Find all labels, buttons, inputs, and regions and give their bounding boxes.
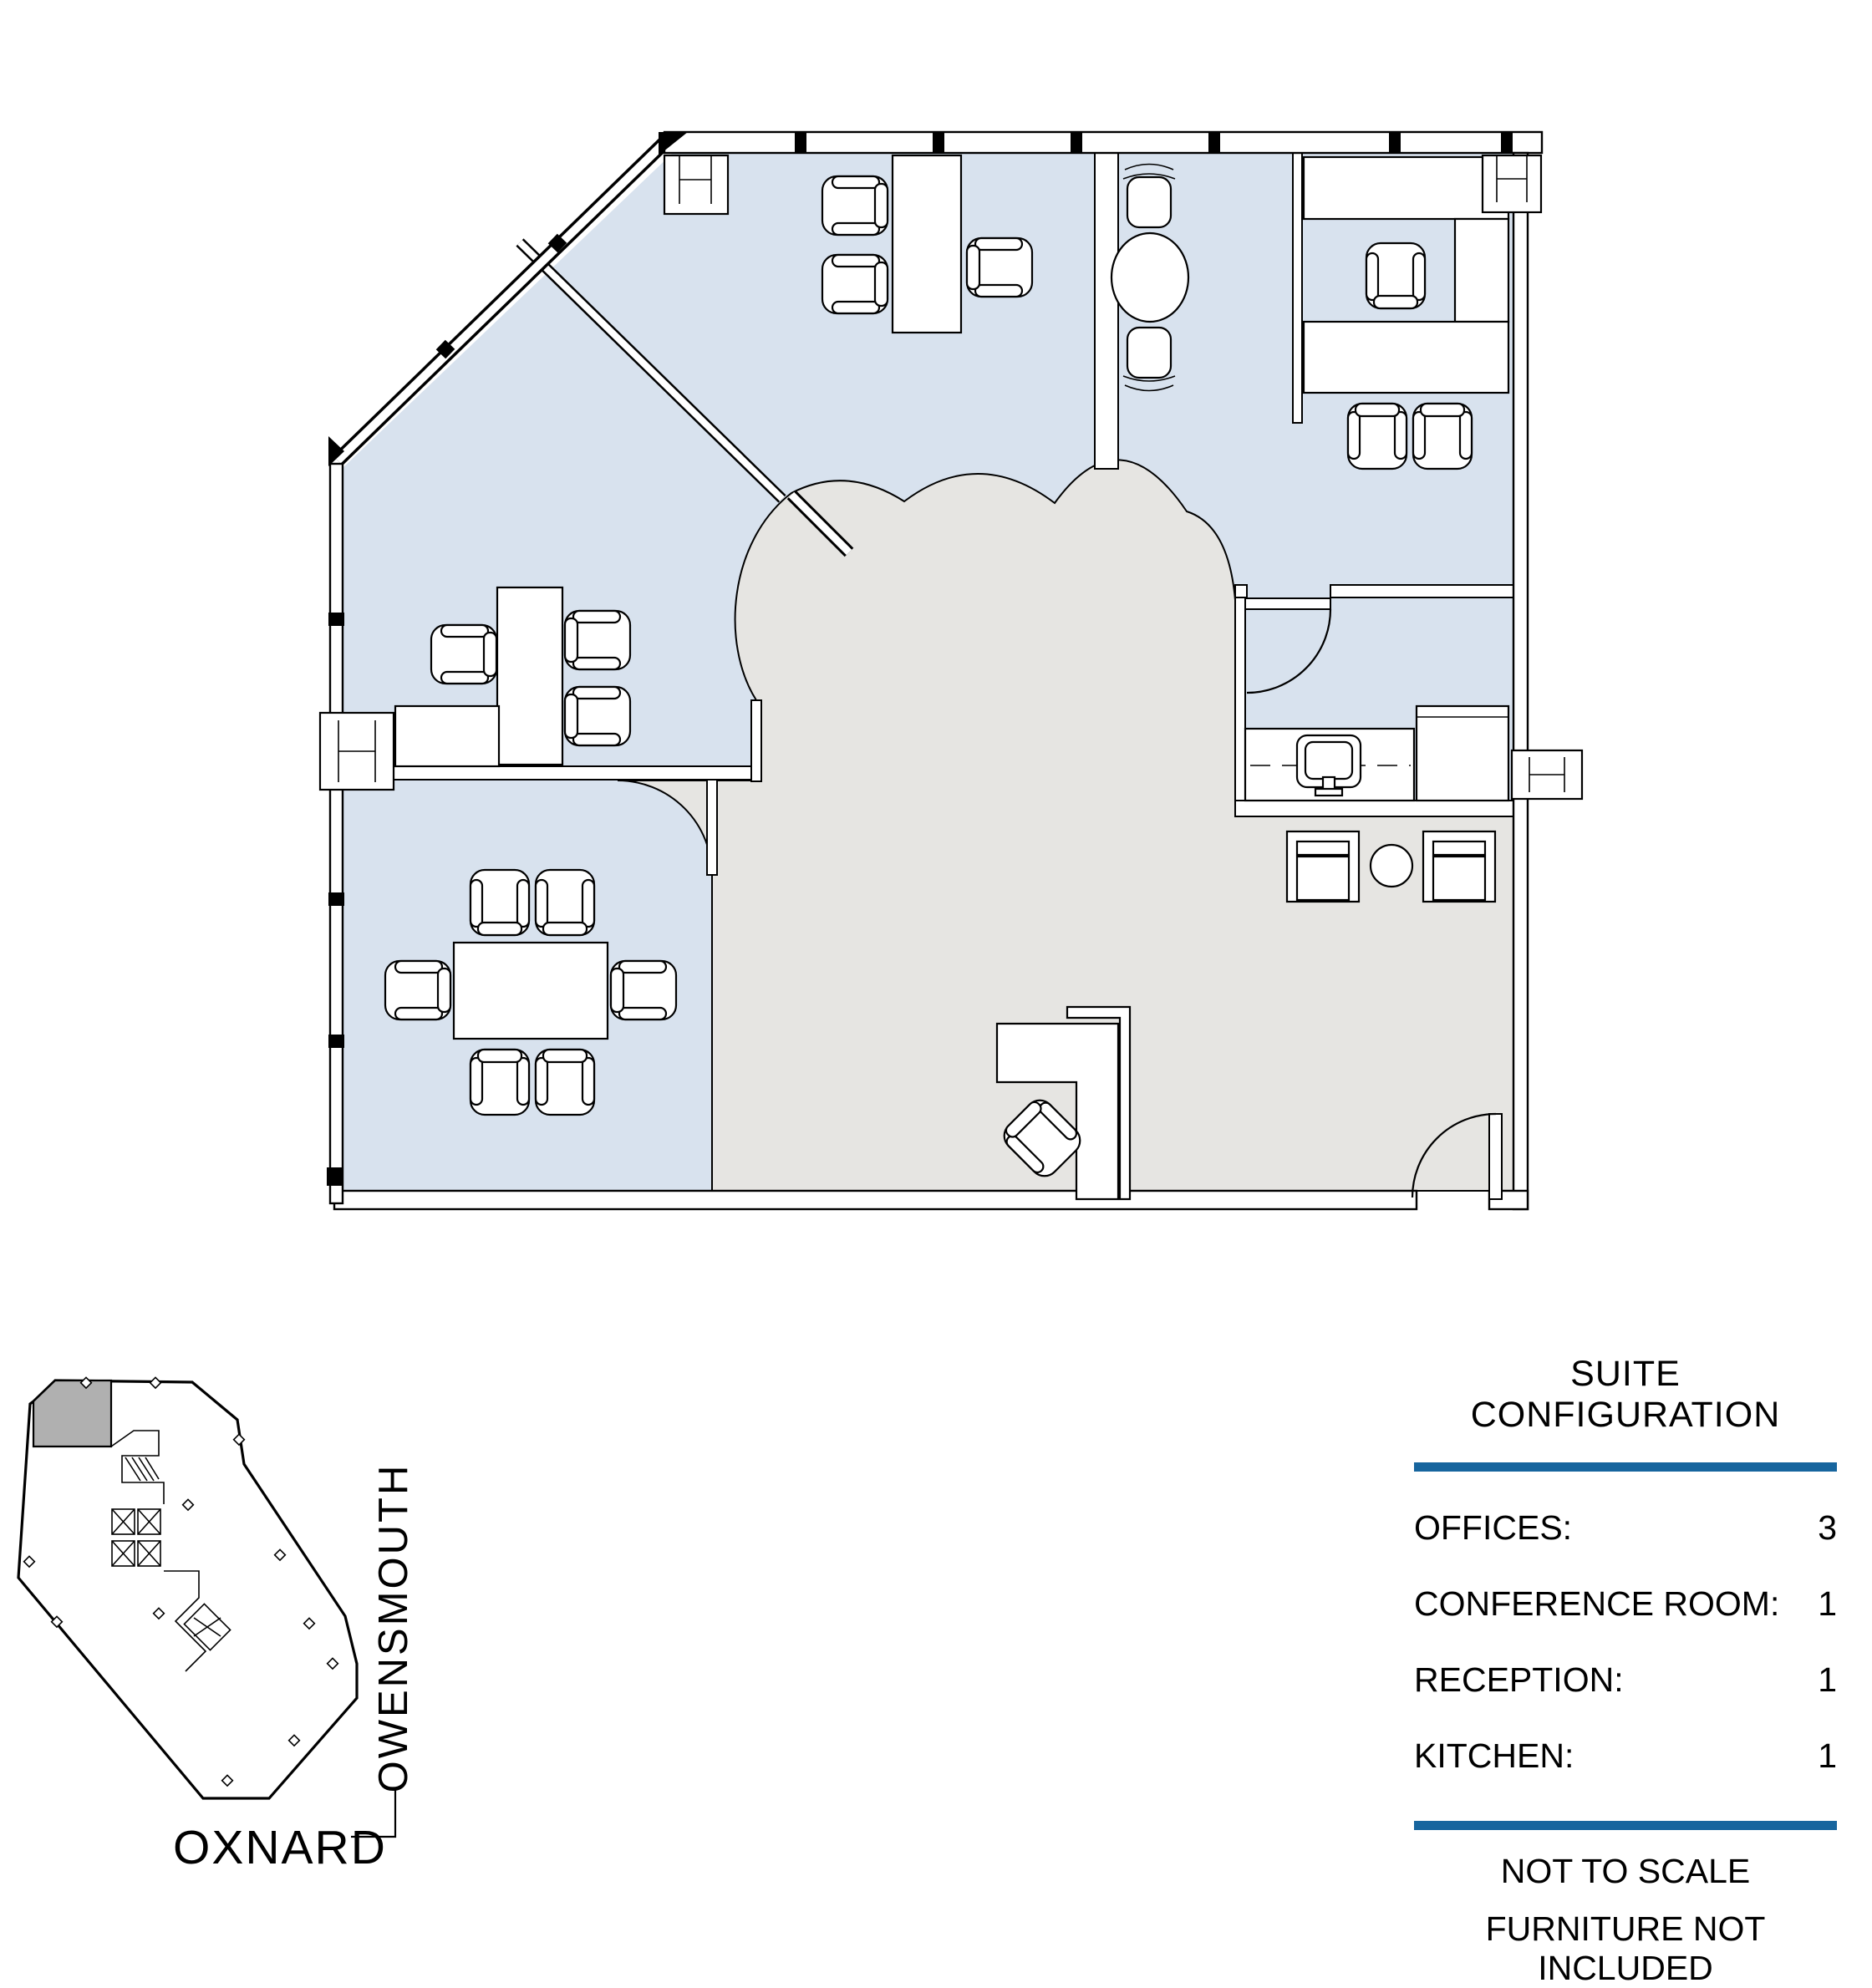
conference-chair — [471, 870, 529, 935]
floorplan-page: { "colors": { "room_fill": "#d8e2ee", "c… — [0, 0, 1872, 1882]
side-table — [1371, 845, 1412, 887]
convector-unit — [664, 155, 728, 214]
table-row: RECEPTION: 1 — [1414, 1660, 1837, 1700]
round-table — [1111, 233, 1188, 322]
lounge-chair — [1423, 831, 1495, 902]
row-value: 1 — [1818, 1584, 1837, 1624]
notes: NOT TO SCALE FURNITURE NOT INCLUDED — [1414, 1852, 1837, 1988]
lounge-chair — [1287, 831, 1359, 902]
desk-chair — [431, 625, 496, 684]
note-furniture: FURNITURE NOT INCLUDED — [1414, 1909, 1837, 1988]
guest-chair — [565, 687, 630, 745]
key-plan — [18, 1377, 395, 1837]
table-row: KITCHEN: 1 — [1414, 1736, 1837, 1776]
divider-bottom — [1414, 1821, 1837, 1830]
office2-credenza — [395, 706, 499, 766]
guest-chair — [822, 176, 888, 235]
guest-chair — [565, 611, 630, 669]
desk-chair — [1366, 243, 1425, 308]
row-label: OFFICES: — [1414, 1508, 1572, 1548]
conference-chair — [536, 870, 594, 935]
convector-unit — [320, 713, 394, 790]
guest-chair — [1413, 404, 1472, 469]
convector-unit — [1512, 750, 1582, 799]
side-chair — [1127, 328, 1171, 378]
conference-chair — [536, 1050, 594, 1115]
row-label: CONFERENCE ROOM: — [1414, 1584, 1779, 1624]
desk-chair — [967, 238, 1032, 297]
office2-desk — [497, 587, 562, 765]
divider-top — [1414, 1462, 1837, 1472]
row-value: 1 — [1818, 1660, 1837, 1700]
office1-desk — [893, 155, 961, 333]
office3-desk — [1304, 157, 1508, 219]
office3-desk2 — [1304, 322, 1508, 393]
row-value: 3 — [1818, 1508, 1837, 1548]
convector-unit — [1483, 155, 1541, 212]
panel-title: SUITE CONFIGURATION — [1414, 1354, 1837, 1436]
configuration-table: OFFICES: 3 CONFERENCE ROOM: 1 RECEPTION:… — [1414, 1508, 1837, 1776]
conference-chair — [471, 1050, 529, 1115]
row-label: KITCHEN: — [1414, 1736, 1574, 1776]
note-not-to-scale: NOT TO SCALE — [1414, 1852, 1837, 1891]
side-chair — [1127, 177, 1171, 227]
row-label: RECEPTION: — [1414, 1660, 1624, 1700]
guest-chair — [822, 255, 888, 313]
row-value: 1 — [1818, 1736, 1837, 1776]
conference-table — [454, 943, 608, 1039]
conference-chair — [611, 961, 676, 1019]
conference-chair — [385, 961, 450, 1019]
office2-door-leaf — [751, 700, 761, 781]
guest-chair — [1348, 404, 1407, 469]
table-row: CONFERENCE ROOM: 1 — [1414, 1584, 1837, 1624]
street-label-owensmouth: OWENSMOUTH — [370, 1463, 417, 1793]
table-row: OFFICES: 3 — [1414, 1508, 1837, 1548]
conference-door-leaf — [707, 780, 717, 875]
refrigerator — [1417, 706, 1508, 801]
office3-desk-return — [1455, 219, 1508, 322]
suite-location-shaded — [33, 1380, 111, 1447]
street-label-oxnard: OXNARD — [173, 1820, 387, 1875]
suite-configuration-panel: SUITE CONFIGURATION OFFICES: 3 CONFERENC… — [1414, 1354, 1837, 1988]
